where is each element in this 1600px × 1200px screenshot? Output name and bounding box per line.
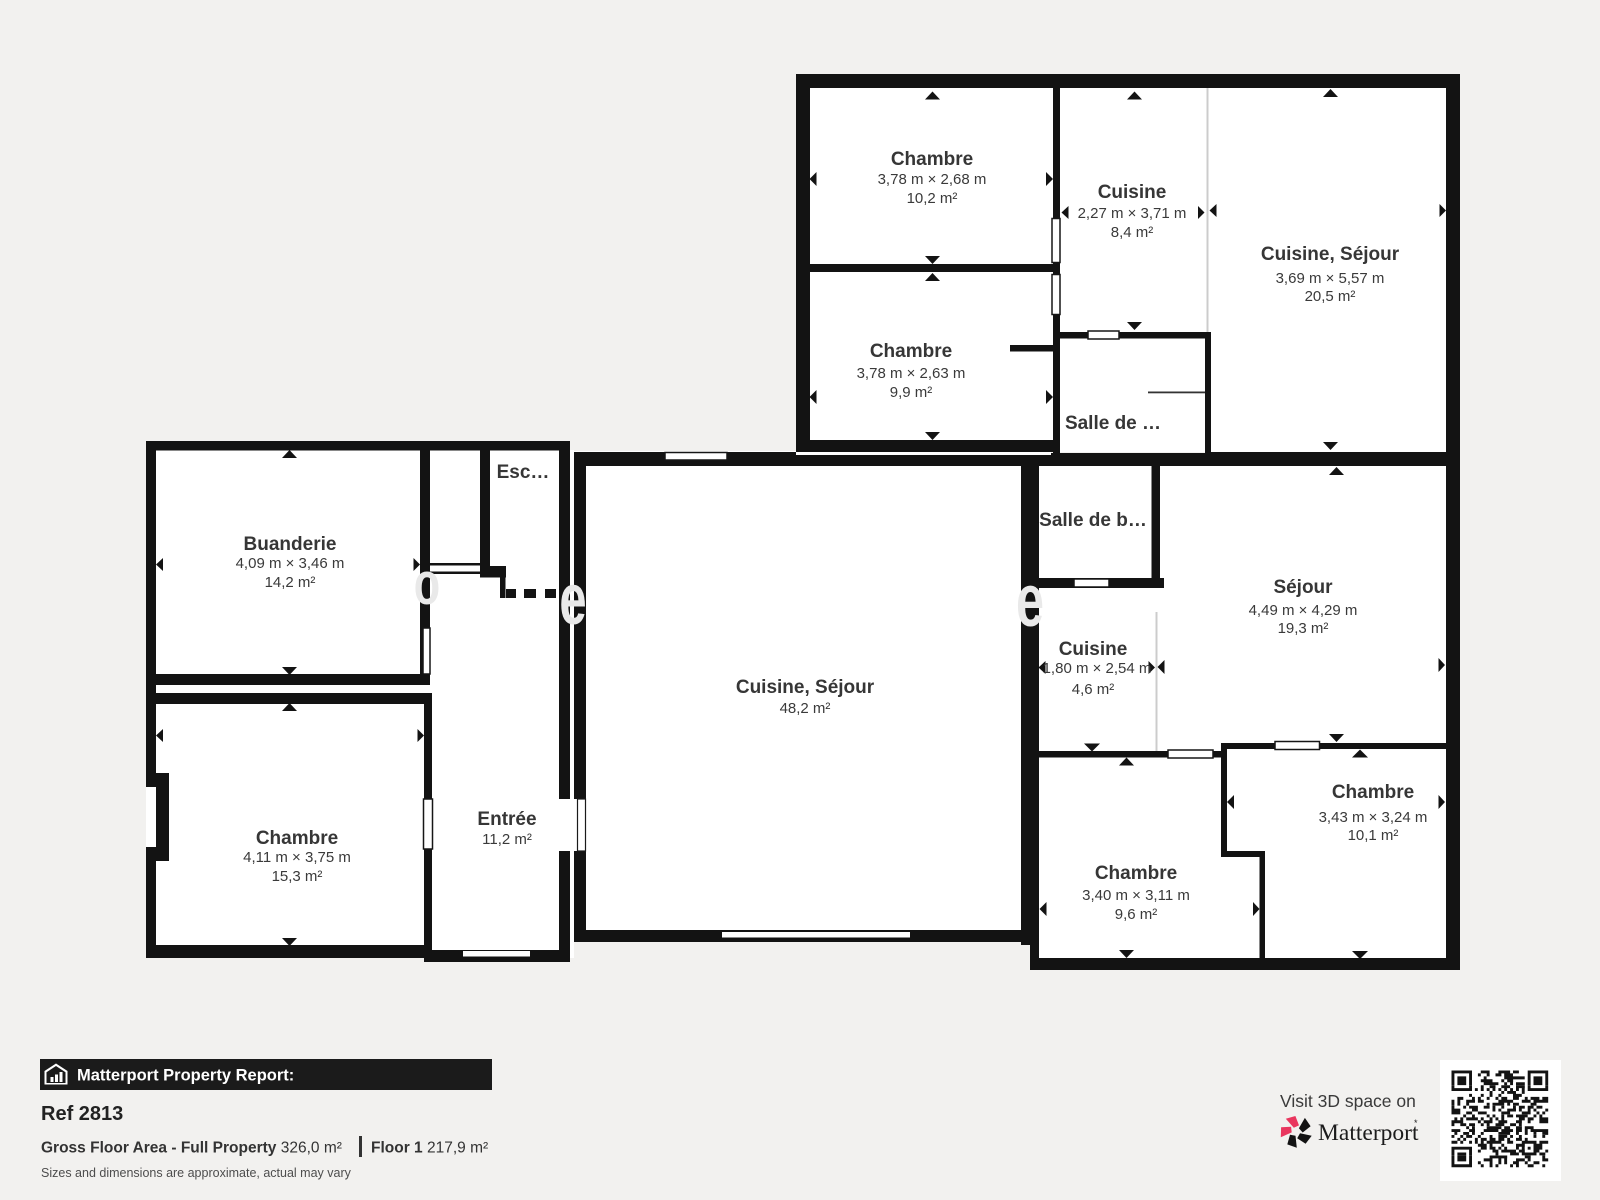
svg-text:3,43 m × 3,24 m: 3,43 m × 3,24 m <box>1319 809 1428 826</box>
svg-text:e: e <box>559 560 586 641</box>
svg-text:8,4 m²: 8,4 m² <box>1111 224 1154 241</box>
svg-text:Chambre: Chambre <box>256 828 338 849</box>
svg-text:Ref 2813: Ref 2813 <box>41 1103 123 1125</box>
svg-text:3,40 m × 3,11 m: 3,40 m × 3,11 m <box>1082 887 1190 904</box>
svg-text:Cuisine: Cuisine <box>1059 639 1128 660</box>
svg-text:4,09 m × 3,46 m: 4,09 m × 3,46 m <box>236 555 345 572</box>
svg-text:3,78 m × 2,68 m: 3,78 m × 2,68 m <box>878 171 987 188</box>
svg-text:9,6 m²: 9,6 m² <box>1115 906 1158 923</box>
svg-text:Matterport Property Report:: Matterport Property Report: <box>77 1067 294 1085</box>
svg-text:Matterport: Matterport <box>1318 1120 1419 1146</box>
svg-text:e: e <box>1016 561 1044 643</box>
svg-text:Salle de …: Salle de … <box>1065 413 1161 434</box>
svg-text:2,27 m × 3,71 m: 2,27 m × 3,71 m <box>1078 205 1187 222</box>
svg-text:4,11 m × 3,75 m: 4,11 m × 3,75 m <box>243 849 351 866</box>
svg-text:15,3 m²: 15,3 m² <box>272 868 323 885</box>
svg-text:19,3 m²: 19,3 m² <box>1278 620 1329 637</box>
svg-text:o: o <box>414 551 440 618</box>
svg-text:4,6 m²: 4,6 m² <box>1072 681 1115 698</box>
svg-text:Sizes and dimensions are appro: Sizes and dimensions are approximate, ac… <box>41 1166 352 1180</box>
svg-text:4,49 m × 4,29 m: 4,49 m × 4,29 m <box>1249 602 1358 619</box>
svg-text:14,2 m²: 14,2 m² <box>265 574 316 591</box>
svg-text:10,2 m²: 10,2 m² <box>907 190 958 207</box>
svg-text:Floor 1 217,9 m²: Floor 1 217,9 m² <box>371 1140 488 1157</box>
svg-text:Visit 3D space on: Visit 3D space on <box>1280 1091 1416 1111</box>
svg-text:Cuisine, Séjour: Cuisine, Séjour <box>1261 244 1400 265</box>
svg-text:Esc…: Esc… <box>497 462 550 483</box>
svg-text:3,69 m × 5,57 m: 3,69 m × 5,57 m <box>1276 270 1385 287</box>
svg-text:10,1 m²: 10,1 m² <box>1348 827 1399 844</box>
svg-text:1,80 m × 2,54 m: 1,80 m × 2,54 m <box>1043 660 1152 677</box>
svg-text:48,2 m²: 48,2 m² <box>780 700 831 717</box>
svg-text:9,9 m²: 9,9 m² <box>890 384 933 401</box>
svg-text:20,5 m²: 20,5 m² <box>1305 288 1356 305</box>
svg-text:Chambre: Chambre <box>1095 863 1177 884</box>
svg-text:Chambre: Chambre <box>870 341 952 362</box>
svg-text:Chambre: Chambre <box>1332 782 1414 803</box>
svg-text:*: * <box>1414 1118 1418 1128</box>
svg-text:Cuisine, Séjour: Cuisine, Séjour <box>736 677 875 698</box>
svg-text:Buanderie: Buanderie <box>244 534 337 555</box>
svg-text:Gross Floor Area - Full Proper: Gross Floor Area - Full Property 326,0 m… <box>41 1140 342 1157</box>
svg-text:Chambre: Chambre <box>891 149 973 170</box>
svg-text:Cuisine: Cuisine <box>1098 182 1167 203</box>
svg-text:Salle de b…: Salle de b… <box>1039 510 1147 531</box>
svg-text:11,2 m²: 11,2 m² <box>482 831 532 848</box>
svg-text:Séjour: Séjour <box>1273 577 1333 598</box>
svg-text:3,78 m × 2,63 m: 3,78 m × 2,63 m <box>857 365 966 382</box>
svg-text:Entrée: Entrée <box>477 809 536 830</box>
